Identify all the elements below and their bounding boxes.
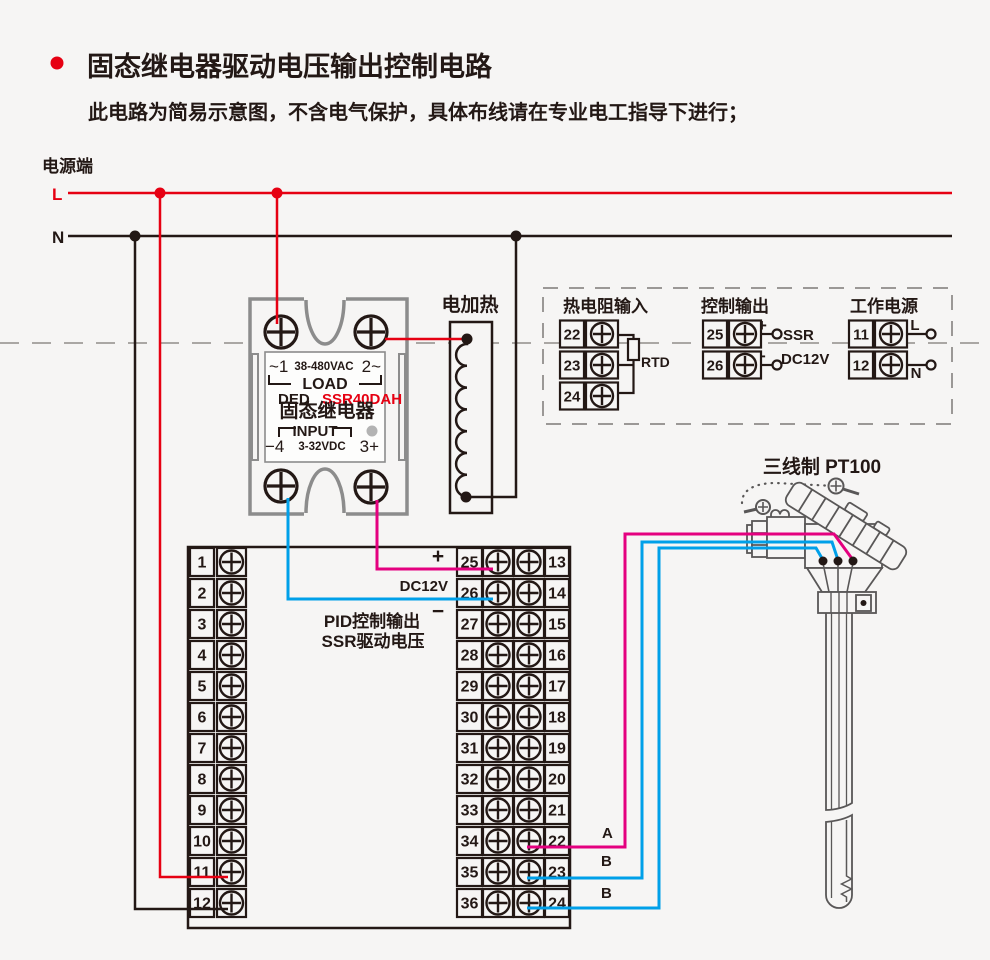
wire-label-b2: B xyxy=(601,885,612,902)
terminal-number: 11 xyxy=(853,327,869,344)
line-n-label: N xyxy=(52,228,64,247)
power-terminal-label: 电源端 xyxy=(42,156,93,176)
terminal-number: 33 xyxy=(461,803,479,820)
terminal-number: 21 xyxy=(548,803,566,820)
block-dc12v-label: DC12V xyxy=(400,578,448,595)
supply-n-label: N xyxy=(911,365,922,382)
sensor-terminal-dot-1 xyxy=(819,557,828,566)
block-caption-line2: SSR驱动电压 xyxy=(322,631,425,651)
terminal-number: 12 xyxy=(853,358,870,375)
terminal-number: 9 xyxy=(198,803,207,820)
ssr-out-node-icon xyxy=(773,330,782,339)
sensor-wire-labels: A B B xyxy=(601,825,613,902)
heater-top-node xyxy=(462,334,473,345)
rtd-resistor-icon xyxy=(628,339,639,360)
terminal-number: 28 xyxy=(461,648,479,665)
terminal-number: 13 xyxy=(548,555,566,572)
line-l-label: L xyxy=(52,185,62,204)
supply-n-node-icon xyxy=(927,361,936,370)
supply-section-title: 工作电源 xyxy=(850,296,918,316)
wiring-diagram: 固态继电器驱动电压输出控制电路 此电路为简易示意图，不含电气保护，具体布线请在专… xyxy=(0,0,990,955)
terminal-number: 8 xyxy=(198,772,207,789)
page-title: 固态继电器驱动电压输出控制电路 xyxy=(87,51,493,82)
ssr-dc-left: −4 xyxy=(265,437,284,456)
terminal-number: 5 xyxy=(198,679,207,696)
ssr-dc-rating: 3-32VDC xyxy=(298,441,345,453)
sensor-terminal-dot-2 xyxy=(834,557,843,566)
ssr-ac-right: 2~ xyxy=(362,357,381,376)
terminal-number: 2 xyxy=(198,586,207,603)
page-subtitle: 此电路为简易示意图，不含电气保护，具体布线请在专业电工指导下进行； xyxy=(88,100,748,124)
terminal-number: 24 xyxy=(564,389,581,406)
terminal-number: 29 xyxy=(461,679,479,696)
control-ssr-label: SSR xyxy=(783,327,814,344)
terminal-number: 4 xyxy=(198,648,207,665)
terminal-number: 31 xyxy=(461,741,479,758)
terminal-number: 23 xyxy=(564,358,581,375)
wiring-diagram-page: 固态继电器驱动电压输出控制电路 此电路为简易示意图，不含电气保护，具体布线请在专… xyxy=(0,0,990,955)
ssr-input-label: INPUT xyxy=(293,423,338,440)
terminal-number: 10 xyxy=(193,834,211,851)
sensor-head-left-block xyxy=(767,517,805,558)
terminal-number: 24 xyxy=(548,896,566,913)
control-dc12v-label: DC12V xyxy=(781,351,829,368)
ssr-led-icon xyxy=(367,426,378,437)
terminal-number: 17 xyxy=(548,679,566,696)
terminal-number: 25 xyxy=(707,327,724,344)
block-plus-sign: + xyxy=(432,545,444,568)
n-junction-dot-1 xyxy=(130,231,141,242)
bullet-icon xyxy=(51,57,64,70)
sensor-terminal-dot-3 xyxy=(849,557,858,566)
controller-terminal-block: 1251322614327154281652917630187311983220… xyxy=(188,545,570,928)
terminal-number: 6 xyxy=(198,710,207,727)
terminal-number: 22 xyxy=(564,327,581,344)
wire-label-a: A xyxy=(602,825,613,842)
wire-label-b1: B xyxy=(601,853,612,870)
ssr-dc-right: 3+ xyxy=(360,437,379,456)
terminal-number: 7 xyxy=(198,741,207,758)
terminal-number: 32 xyxy=(461,772,479,789)
block-caption-line1: PID控制输出 xyxy=(324,611,420,631)
rtd-section-title: 热电阻输入 xyxy=(563,296,648,316)
sensor-label: 三线制 PT100 xyxy=(763,455,881,478)
terminal-number: 26 xyxy=(707,358,724,375)
terminal-number: 16 xyxy=(548,648,566,665)
electric-heater: 电加热 xyxy=(441,293,498,513)
terminal-number: 3 xyxy=(198,617,207,634)
n-junction-dot-2 xyxy=(511,231,522,242)
terminal-number: 36 xyxy=(461,896,479,913)
l-junction-dot-2 xyxy=(272,188,283,199)
terminal-number: 19 xyxy=(548,741,566,758)
terminal-number: 20 xyxy=(548,772,566,789)
supply-l-label: L xyxy=(910,317,919,334)
block-minus-sign: − xyxy=(432,600,444,623)
control-section-title: 控制输出 xyxy=(701,296,769,316)
heater-label: 电加热 xyxy=(441,293,498,316)
heater-bottom-node xyxy=(461,492,472,503)
terminal-number: 1 xyxy=(198,555,207,572)
terminal-number: 11 xyxy=(194,865,211,882)
sensor-collar-screw-icon xyxy=(861,600,867,606)
terminal-number: 18 xyxy=(548,710,566,727)
sensor-hex-nut xyxy=(752,521,767,557)
terminal-number: 27 xyxy=(461,617,479,634)
supply-l-node-icon xyxy=(927,330,936,339)
ssr-ac-left: ~1 xyxy=(269,357,288,376)
terminal-number: 30 xyxy=(461,710,479,727)
solid-state-relay: ~1 38-480VAC 2~ LOAD DED SSR40DAH 固态继电器 … xyxy=(250,299,407,514)
terminal-number: 15 xyxy=(548,617,566,634)
ssr-ac-rating: 38-480VAC xyxy=(294,361,353,373)
ssr-name: 固态继电器 xyxy=(279,399,375,422)
rtd-label: RTD xyxy=(641,354,670,370)
terminal-number: 14 xyxy=(548,586,566,603)
terminal-number: 35 xyxy=(461,865,479,882)
terminal-number: 34 xyxy=(461,834,479,851)
l-junction-dot-1 xyxy=(155,188,166,199)
